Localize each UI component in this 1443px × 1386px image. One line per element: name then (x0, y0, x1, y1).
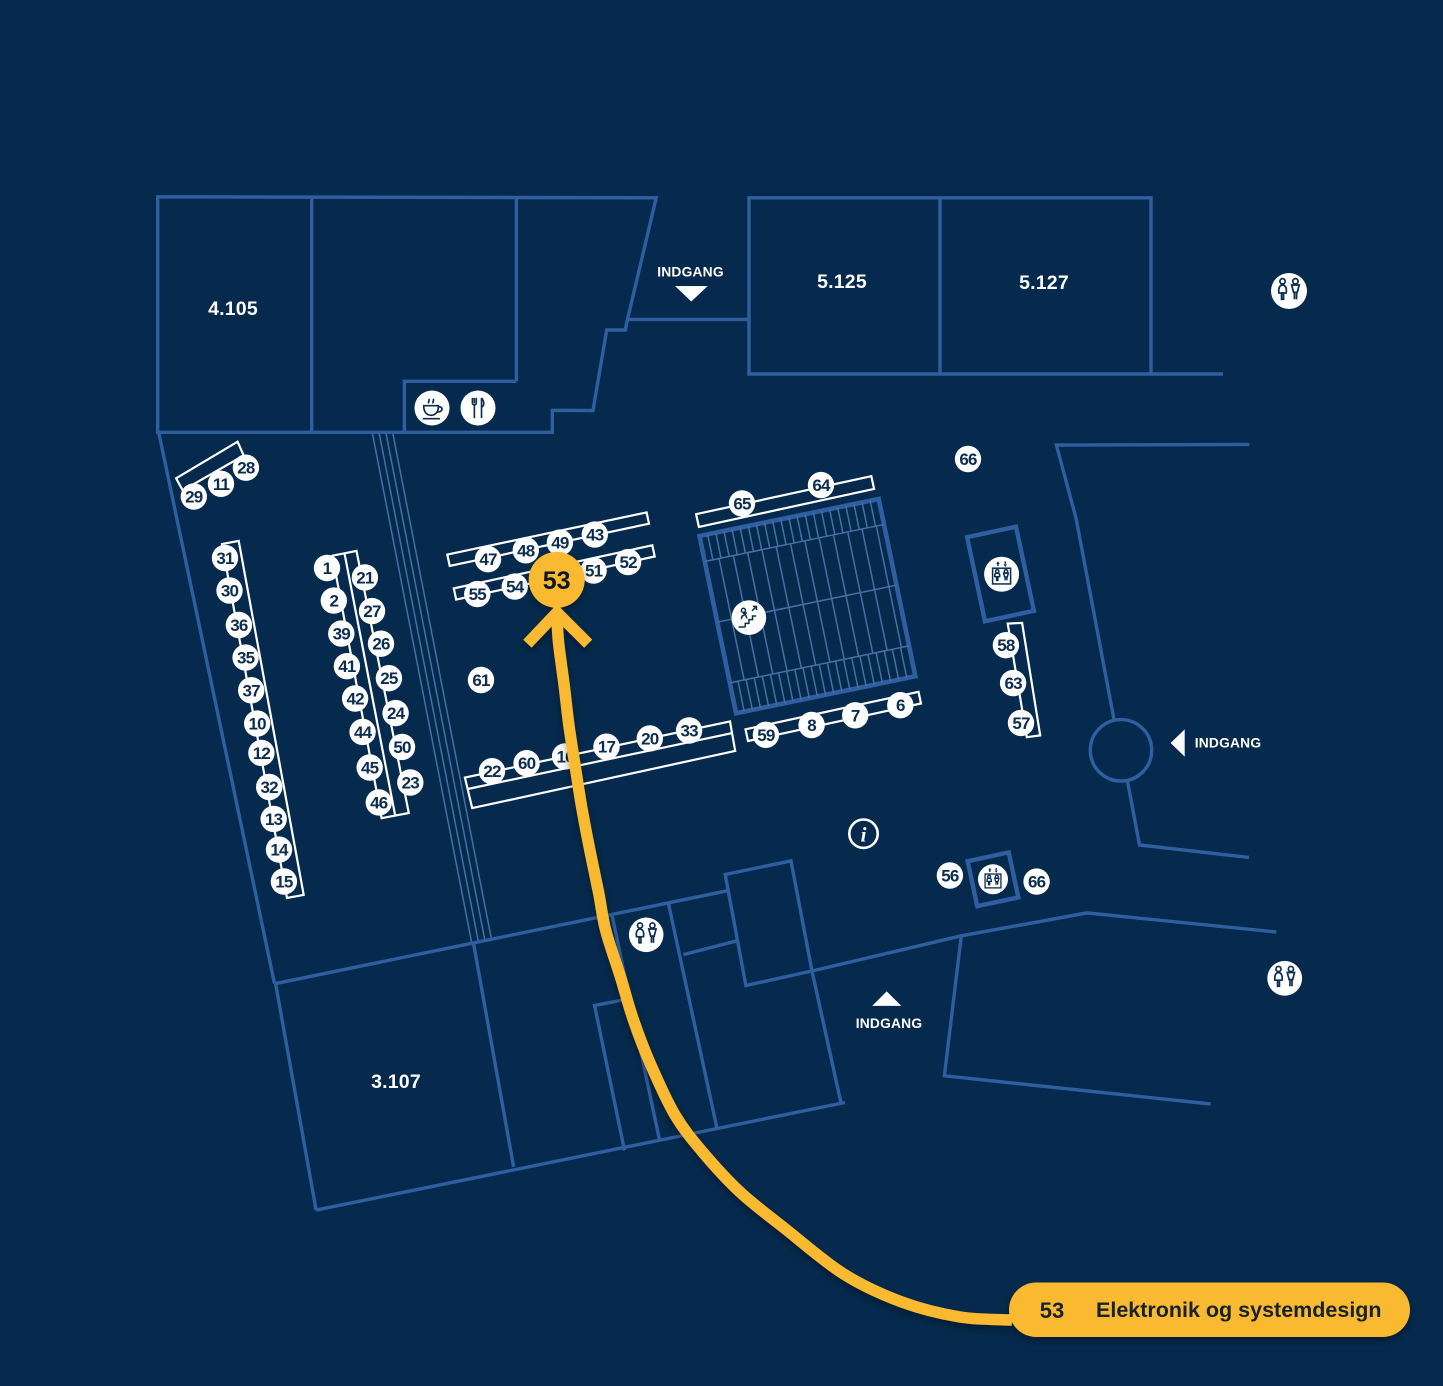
svg-text:45: 45 (361, 759, 379, 778)
svg-text:58: 58 (997, 636, 1015, 655)
svg-text:46: 46 (370, 793, 388, 812)
svg-text:26: 26 (372, 635, 390, 654)
svg-text:66: 66 (1028, 873, 1046, 892)
svg-text:65: 65 (733, 494, 751, 513)
svg-text:24: 24 (387, 704, 406, 723)
svg-text:30: 30 (221, 582, 239, 601)
svg-text:14: 14 (270, 841, 289, 860)
svg-text:39: 39 (333, 625, 351, 644)
svg-text:10: 10 (249, 715, 267, 734)
svg-text:37: 37 (243, 681, 261, 700)
svg-text:6: 6 (896, 696, 905, 715)
svg-text:5.127: 5.127 (1019, 272, 1069, 294)
svg-text:3.107: 3.107 (371, 1071, 421, 1093)
svg-text:44: 44 (354, 723, 373, 742)
svg-text:2: 2 (329, 592, 338, 611)
svg-text:28: 28 (237, 459, 255, 478)
svg-text:1: 1 (323, 559, 332, 578)
svg-text:23: 23 (402, 774, 420, 793)
svg-text:48: 48 (517, 541, 535, 560)
svg-text:29: 29 (185, 488, 203, 507)
svg-text:36: 36 (230, 616, 248, 635)
svg-text:51: 51 (585, 562, 603, 581)
svg-text:59: 59 (757, 726, 775, 745)
svg-text:15: 15 (275, 873, 293, 892)
svg-text:25: 25 (380, 669, 398, 688)
svg-text:42: 42 (346, 690, 364, 709)
svg-text:47: 47 (479, 550, 497, 569)
svg-text:43: 43 (586, 526, 604, 545)
svg-text:4.105: 4.105 (208, 298, 258, 320)
svg-text:8: 8 (807, 716, 816, 735)
svg-text:Elektronik og systemdesign: Elektronik og systemdesign (1096, 1298, 1382, 1322)
svg-text:5.125: 5.125 (817, 271, 867, 293)
svg-text:56: 56 (941, 867, 959, 886)
svg-text:12: 12 (253, 744, 271, 763)
svg-text:54: 54 (506, 578, 525, 597)
svg-text:21: 21 (356, 568, 374, 587)
svg-text:57: 57 (1012, 714, 1030, 733)
svg-text:13: 13 (265, 810, 283, 829)
svg-text:20: 20 (641, 729, 659, 748)
svg-text:66: 66 (959, 450, 977, 469)
svg-text:INDGANG: INDGANG (856, 1016, 923, 1031)
svg-text:i: i (861, 823, 867, 847)
svg-text:7: 7 (851, 706, 860, 725)
svg-text:50: 50 (393, 738, 411, 757)
svg-text:53: 53 (1040, 1298, 1064, 1323)
svg-text:INDGANG: INDGANG (1195, 736, 1262, 751)
svg-text:41: 41 (338, 657, 356, 676)
svg-text:60: 60 (518, 754, 536, 773)
svg-text:63: 63 (1004, 674, 1022, 693)
svg-text:35: 35 (237, 649, 255, 668)
svg-text:53: 53 (543, 567, 571, 595)
svg-text:64: 64 (812, 476, 831, 495)
svg-text:55: 55 (469, 585, 487, 604)
svg-text:52: 52 (619, 553, 637, 572)
svg-text:32: 32 (261, 778, 279, 797)
svg-text:31: 31 (216, 549, 234, 568)
svg-text:17: 17 (598, 738, 616, 757)
svg-text:INDGANG: INDGANG (657, 265, 724, 280)
svg-text:22: 22 (483, 762, 501, 781)
svg-text:27: 27 (363, 602, 381, 621)
svg-text:49: 49 (551, 534, 569, 553)
svg-text:61: 61 (472, 671, 490, 690)
svg-text:33: 33 (680, 722, 698, 741)
svg-text:11: 11 (213, 475, 230, 494)
